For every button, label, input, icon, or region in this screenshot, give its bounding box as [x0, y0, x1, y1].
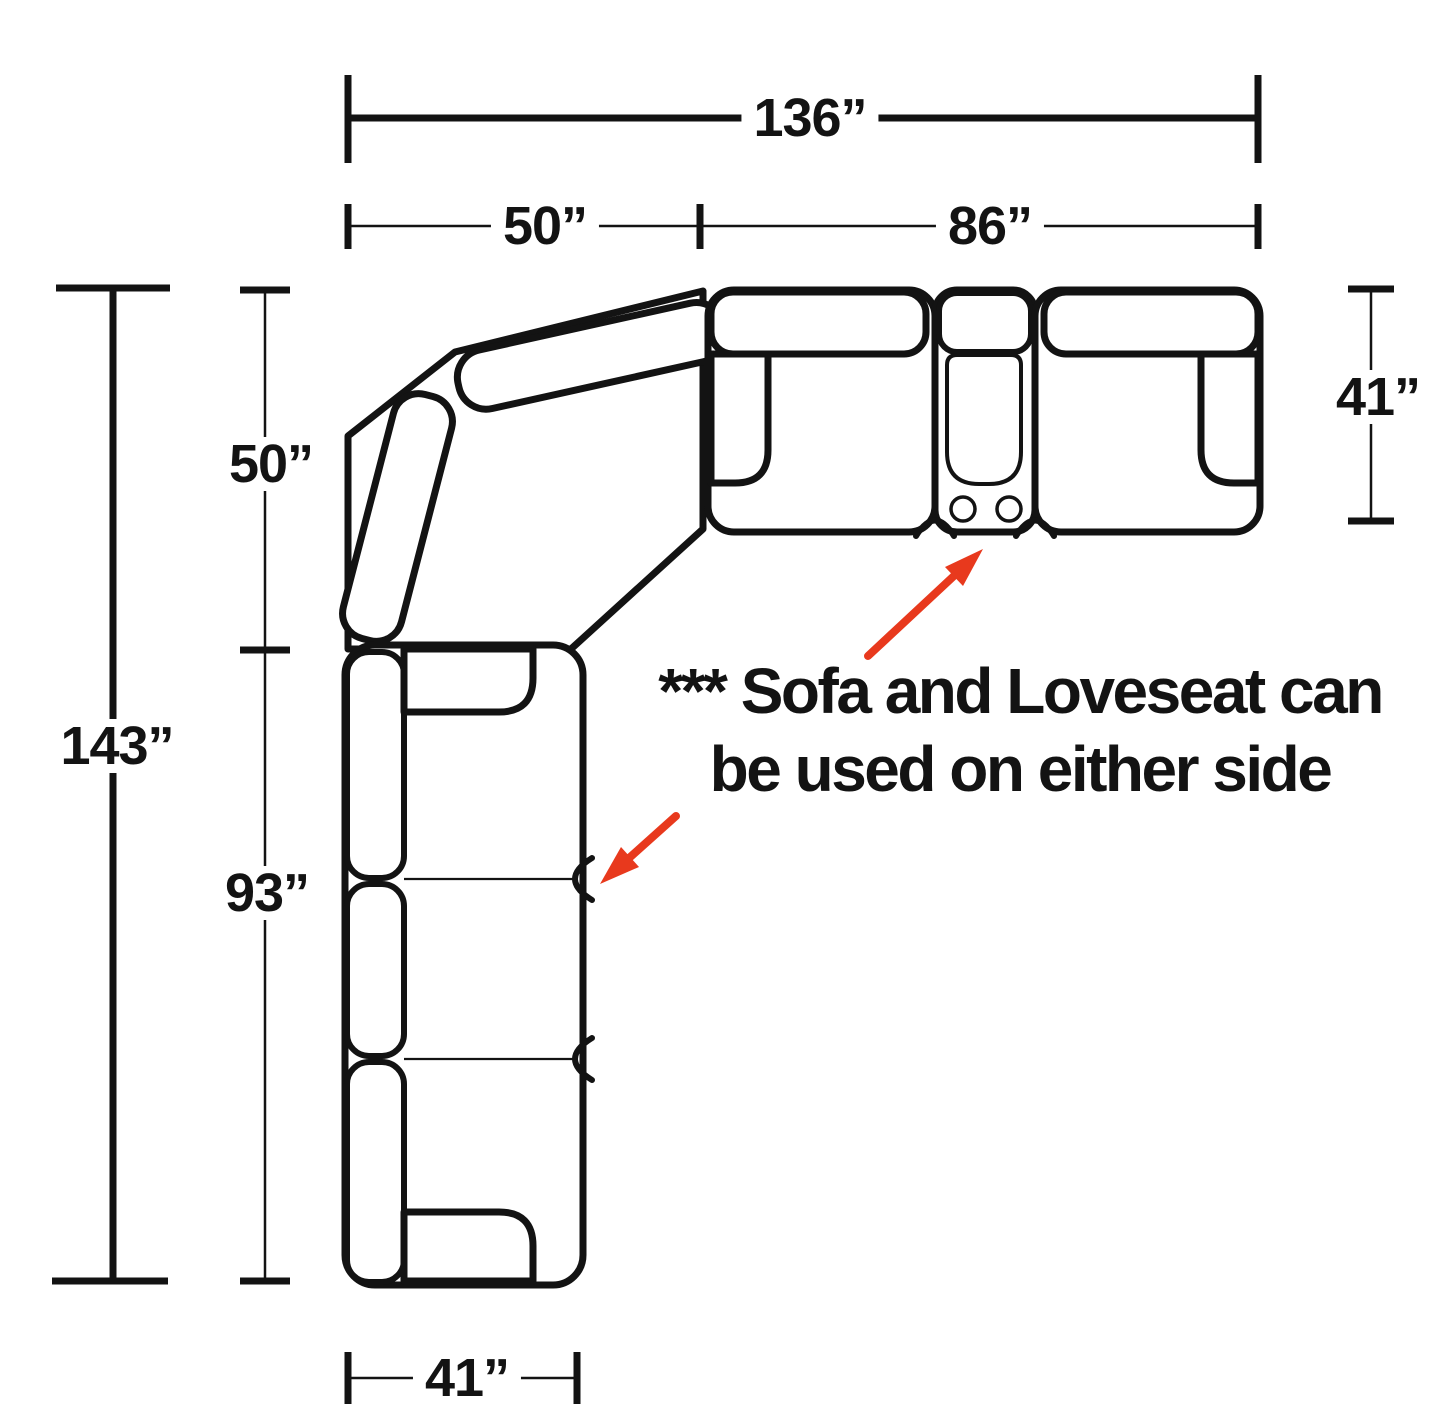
loveseat-right-back-cushion — [1044, 292, 1258, 354]
dim-label-corner-height: 50” — [217, 437, 325, 491]
cupholder-icon-left — [951, 497, 975, 521]
dim-label-total-width: 136” — [741, 91, 878, 145]
sofa-back-cushion-2 — [347, 884, 404, 1056]
loveseat-left-back-cushion — [711, 292, 926, 354]
red-arrow-sofa — [600, 816, 676, 884]
sofa-back-cushion-3 — [347, 1062, 404, 1282]
console-back-cushion — [939, 293, 1031, 352]
annotation-note: *** Sofa and Loveseat can be used on eit… — [540, 652, 1445, 808]
dim-label-total-height: 143” — [48, 719, 185, 773]
cupholder-icon-right — [997, 497, 1021, 521]
corner-section — [337, 291, 731, 649]
dim-label-sofa-length: 93” — [213, 866, 321, 920]
sofa-back-cushion-1 — [347, 652, 404, 878]
red-arrow-console — [868, 549, 983, 656]
sofa-armrest-bottom — [404, 1212, 533, 1281]
red-arrow-console-shaft — [868, 574, 956, 656]
dim-label-loveseat-depth: 41” — [1324, 370, 1432, 424]
loveseat-left-armrest — [711, 354, 768, 483]
annotation-note-line1: *** Sofa and Loveseat can — [540, 652, 1445, 730]
loveseat-section — [708, 290, 1260, 536]
dim-label-sofa-width: 41” — [413, 1351, 521, 1405]
red-arrow-sofa-shaft — [628, 816, 676, 859]
annotation-note-line2: be used on either side — [540, 730, 1445, 808]
sectional-dimension-diagram: 136” 50” 86” 41” 50” 143” 93” 41” *** So… — [0, 0, 1445, 1417]
dim-label-corner-width: 50” — [491, 199, 599, 253]
console-lid — [947, 355, 1021, 484]
loveseat-right-armrest — [1201, 354, 1258, 483]
dim-label-loveseat-width: 86” — [936, 199, 1044, 253]
sofa-armrest-top — [404, 649, 533, 712]
